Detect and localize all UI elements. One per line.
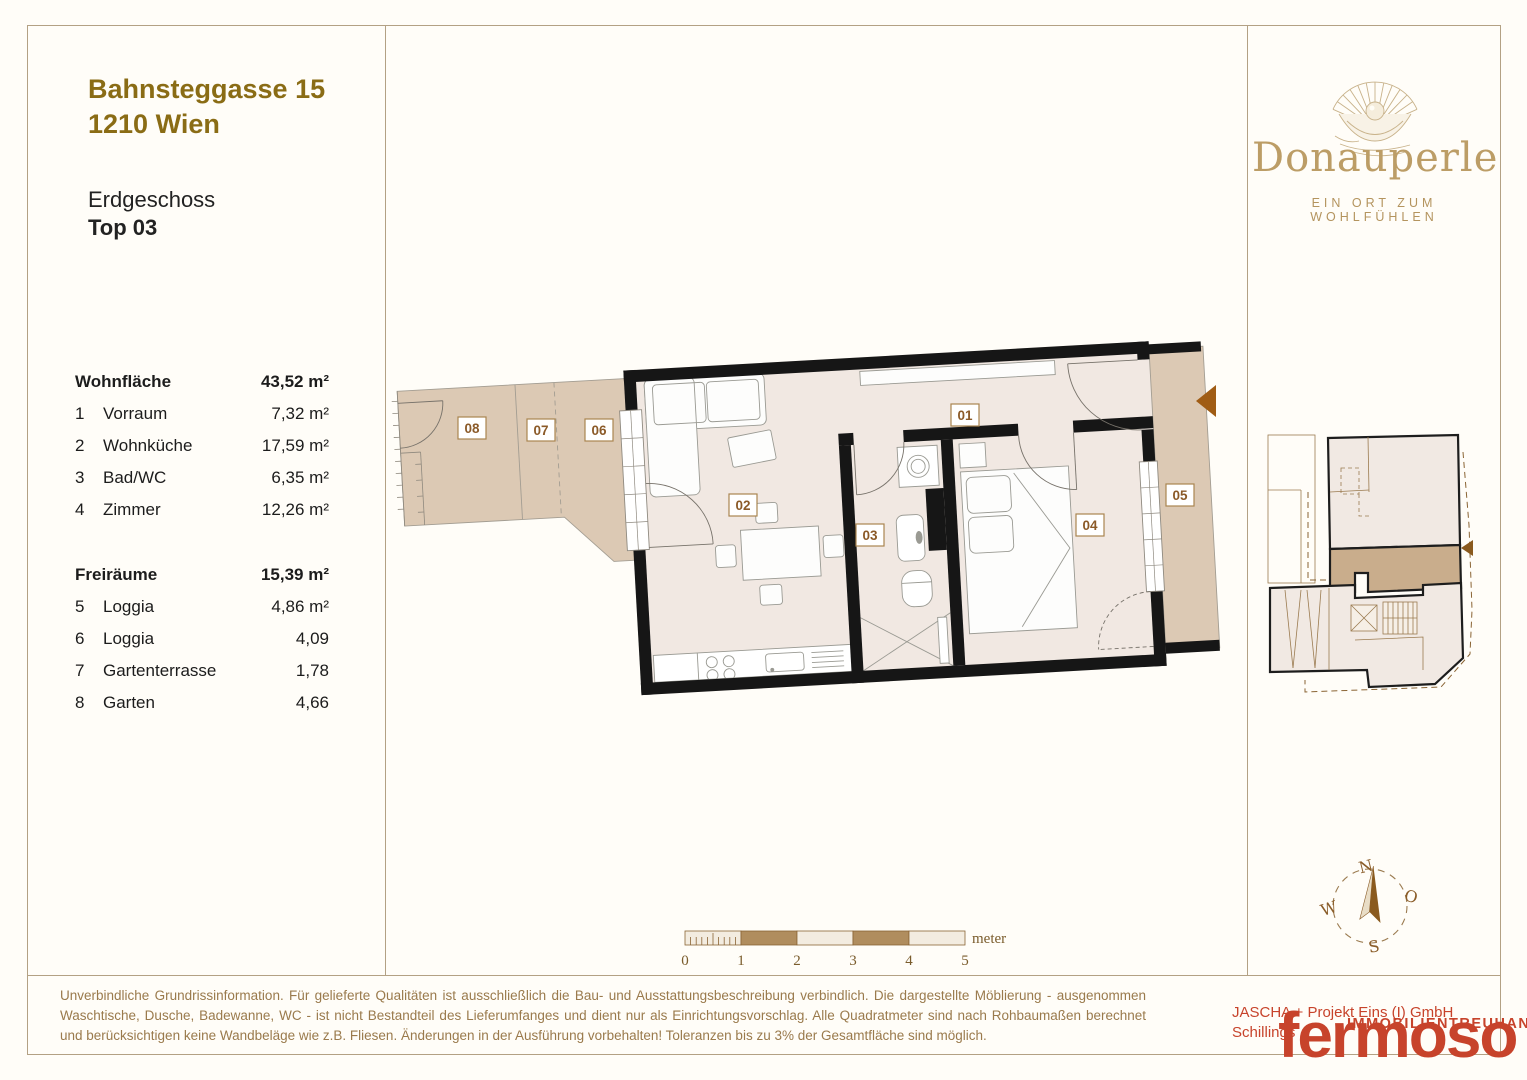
room-label-06: 06 [585,419,613,441]
area-table: Wohnfläche 43,52 m² 1 Vorraum 7,32 m² 2 … [75,366,329,719]
svg-text:0: 0 [681,953,689,969]
room-label-07: 07 [527,419,555,441]
area-row: 1 Vorraum 7,32 m² [75,398,329,430]
svg-text:3: 3 [849,953,857,969]
room-label-02: 02 [729,494,757,516]
area-section-header: Wohnfläche 43,52 m² [75,366,329,398]
scale-unit-label: meter [972,931,1006,947]
brand-tagline: EIN ORT ZUM WOHLFÜHLEN [1252,196,1496,224]
fermoso-logo: fermoso [1278,1003,1517,1067]
svg-text:W: W [1318,897,1340,920]
svg-text:05: 05 [1172,488,1188,503]
svg-text:O: O [1402,886,1419,908]
section-total: 43,52 m² [261,366,329,398]
address-line1: Bahnsteggasse 15 [88,72,325,107]
svg-text:5: 5 [961,953,969,969]
section-title: Freiräume [75,559,261,591]
svg-text:06: 06 [591,423,607,438]
area-row: 5 Loggia 4,86 m² [75,591,329,623]
keyplan-upper-block [1328,435,1460,549]
floor-label: Erdgeschoss [88,186,215,214]
svg-text:S: S [1367,936,1381,957]
area-row: 2 Wohnküche 17,59 m² [75,430,329,462]
room-label-04: 04 [1076,514,1104,536]
disclaimer-text: Unverbindliche Grundrissinformation. Für… [60,986,1146,1046]
area-row: 8 Garten 4,66 [75,687,329,719]
svg-text:4: 4 [905,953,913,969]
key-plan [1263,430,1478,705]
keyplan-context-outline [1268,435,1315,583]
area-row: 3 Bad/WC 6,35 m² [75,462,329,494]
area-row: 6 Loggia 4,09 [75,623,329,655]
area-row: 7 Gartenterrasse 1,78 [75,655,329,687]
svg-text:02: 02 [735,498,750,513]
divider-footer [27,975,1500,976]
section-title: Wohnfläche [75,366,261,398]
svg-text:08: 08 [464,421,480,436]
divider-left-column [385,25,386,975]
section-total: 15,39 m² [261,559,329,591]
unit-label: Top 03 [88,214,157,242]
area-row: 4 Zimmer 12,26 m² [75,494,329,526]
svg-text:2: 2 [793,953,801,969]
address-block: Bahnsteggasse 15 1210 Wien [88,72,325,142]
scale-bar: 0 1 2 3 4 5 meter [680,925,1020,973]
floorplan-drawing: 01 02 03 04 05 06 [388,330,1248,730]
svg-text:01: 01 [957,408,973,423]
room-label-03: 03 [856,524,884,546]
brand-name: Donauperle [1252,135,1496,181]
svg-text:07: 07 [533,423,548,438]
room-label-01: 01 [951,404,979,426]
svg-text:04: 04 [1082,518,1098,533]
svg-text:03: 03 [862,528,878,543]
room-label-08: 08 [458,417,486,439]
room-label-05: 05 [1166,484,1194,506]
keyplan-unit-arrow [1461,540,1473,556]
svg-text:N: N [1357,856,1375,878]
keyplan-lower-block [1270,583,1463,687]
address-line2: 1210 Wien [88,107,325,142]
compass-rose: N O S W [1318,852,1422,956]
area-section-header: Freiräume 15,39 m² [75,559,329,591]
svg-text:1: 1 [737,953,745,969]
floorplan-sheet: Bahnsteggasse 15 1210 Wien Erdgeschoss T… [0,0,1527,1080]
outdoor-areas [397,378,642,573]
